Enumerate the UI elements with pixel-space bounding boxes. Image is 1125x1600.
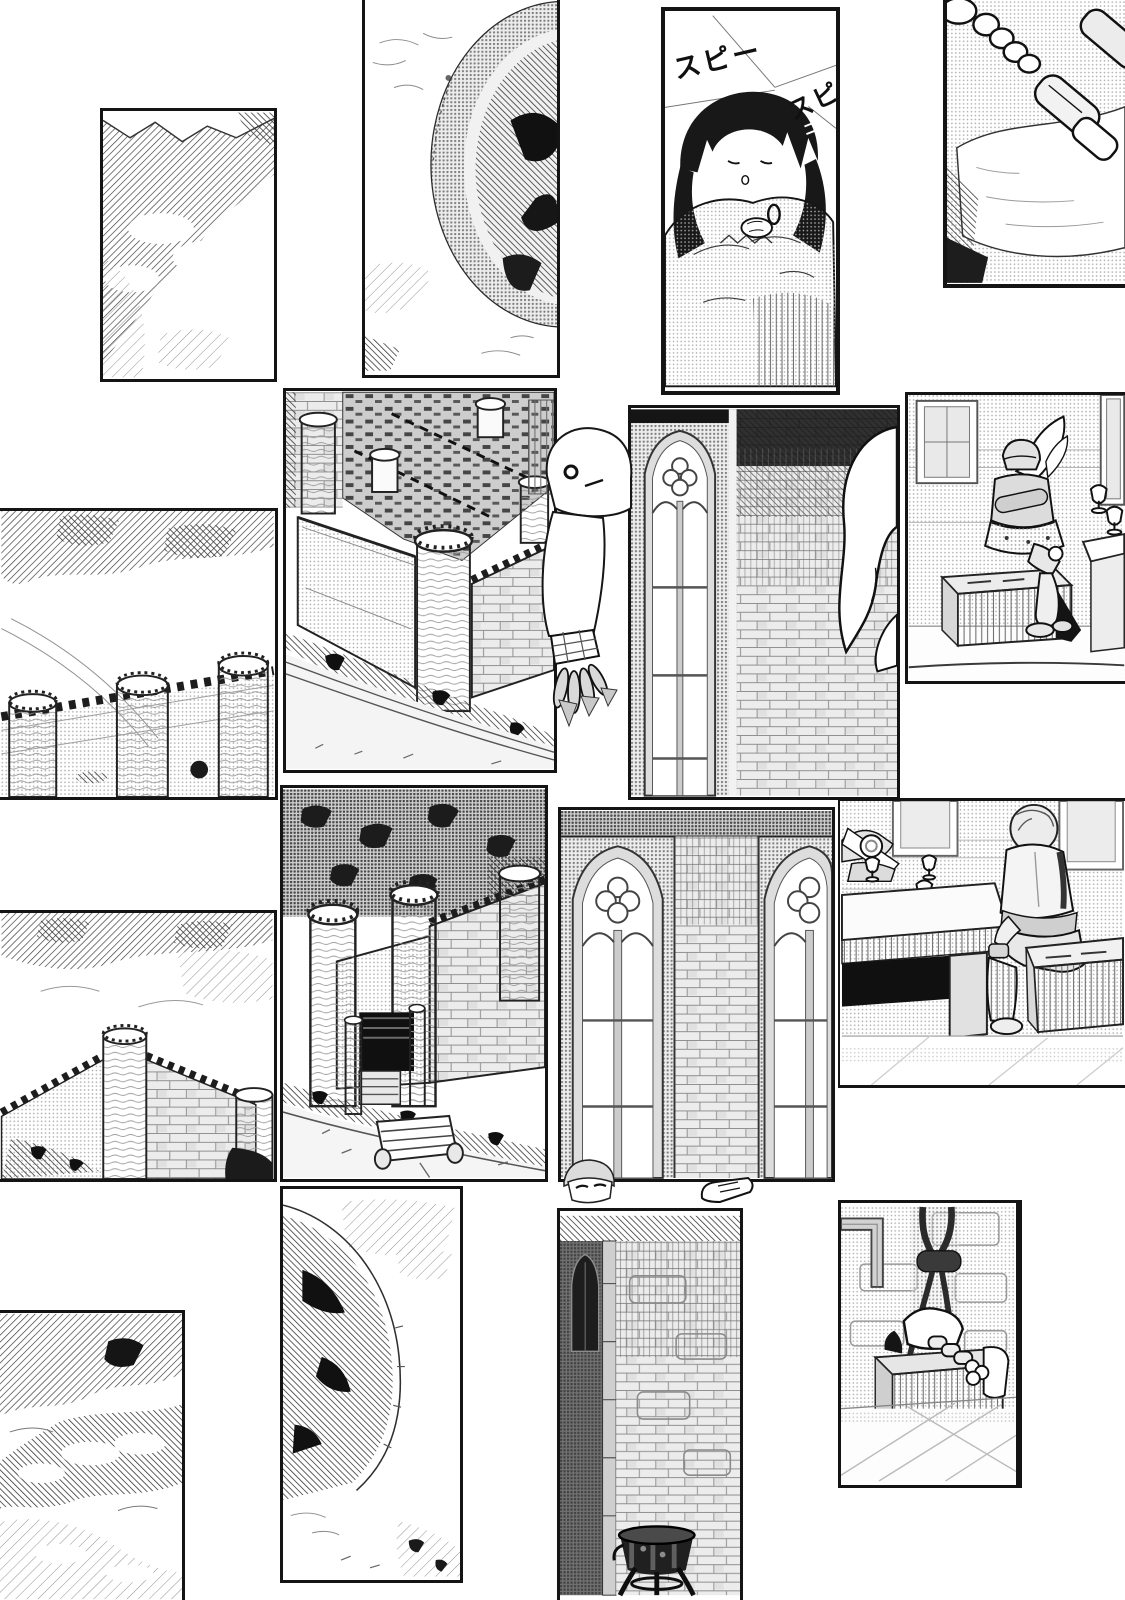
- panel-sleeping-girl: スピー スピ: [661, 7, 840, 395]
- bench-arm-art: [841, 1203, 1016, 1485]
- castle-tower: [9, 691, 56, 797]
- window-bricks-art: [631, 408, 897, 797]
- peeking-hand-overlay: [698, 1176, 756, 1204]
- castle-tower: [300, 413, 337, 514]
- window-icon: [1059, 801, 1123, 870]
- castle-gate-art: [283, 788, 545, 1179]
- crater-art: [365, 0, 557, 375]
- sleeping-girl: [665, 92, 836, 387]
- ghost-spirit-overlay: [533, 412, 633, 734]
- panel-castle-gate: [280, 785, 548, 1182]
- wall-corner-art: [0, 913, 274, 1179]
- gothic-window: [764, 846, 832, 1178]
- panel-seated-knight: [905, 392, 1125, 684]
- brazier-wall-art: [560, 1211, 740, 1600]
- manga-page: スピー スピ: [0, 0, 1125, 1600]
- goblet-icon: [922, 855, 936, 879]
- panel-window-bricks: [628, 405, 900, 800]
- panel-crater: [362, 0, 560, 378]
- doorway: [560, 1241, 616, 1595]
- goblet-icon: [865, 857, 879, 881]
- two-windows-art: [561, 810, 832, 1179]
- ghost-eye: [565, 466, 577, 478]
- panel-table-scene: [838, 798, 1125, 1088]
- gothic-window: [573, 846, 663, 1178]
- panel-castle-aerial: [283, 388, 557, 773]
- corner-tower: [415, 526, 472, 711]
- mountains-art: [103, 111, 274, 379]
- crater-dome: [431, 1, 557, 327]
- bench: [1026, 938, 1123, 1032]
- window-icon: [917, 401, 978, 483]
- table-scene-art: [840, 801, 1125, 1085]
- dome-rim-art: [283, 1189, 460, 1580]
- window-icon: [893, 801, 958, 856]
- goblet-icon: [1107, 507, 1123, 535]
- boots-art: [947, 0, 1125, 284]
- panel-boots-on-bed: [943, 0, 1125, 288]
- curtain-wall-art: [0, 511, 275, 797]
- castle-aerial-art: [286, 391, 554, 770]
- gate: [345, 1005, 425, 1114]
- ghost-spirit: [533, 412, 633, 734]
- peeking-face-overlay: [560, 1156, 618, 1204]
- castle-tower: [103, 1025, 146, 1179]
- peeking-face: [560, 1156, 618, 1204]
- panel-curtain-wall: [0, 508, 278, 800]
- panel-wall-corner: [0, 910, 277, 1182]
- clouds-art: [0, 1313, 182, 1600]
- panel-bench-arm: [838, 1200, 1022, 1488]
- panel-dome-rim: [280, 1186, 463, 1583]
- panel-two-windows: [558, 807, 835, 1182]
- castle-tower: [117, 673, 168, 797]
- gothic-window: [645, 431, 715, 796]
- peeking-hand: [698, 1176, 756, 1204]
- castle-tower: [499, 866, 540, 1001]
- panel-clouds: [0, 1310, 185, 1600]
- panel-brazier-wall: [557, 1208, 743, 1600]
- panel-mountains: [100, 108, 277, 382]
- seated-knight-art: [908, 395, 1125, 681]
- goblet-icon: [1091, 485, 1107, 513]
- castle-tower: [219, 653, 268, 797]
